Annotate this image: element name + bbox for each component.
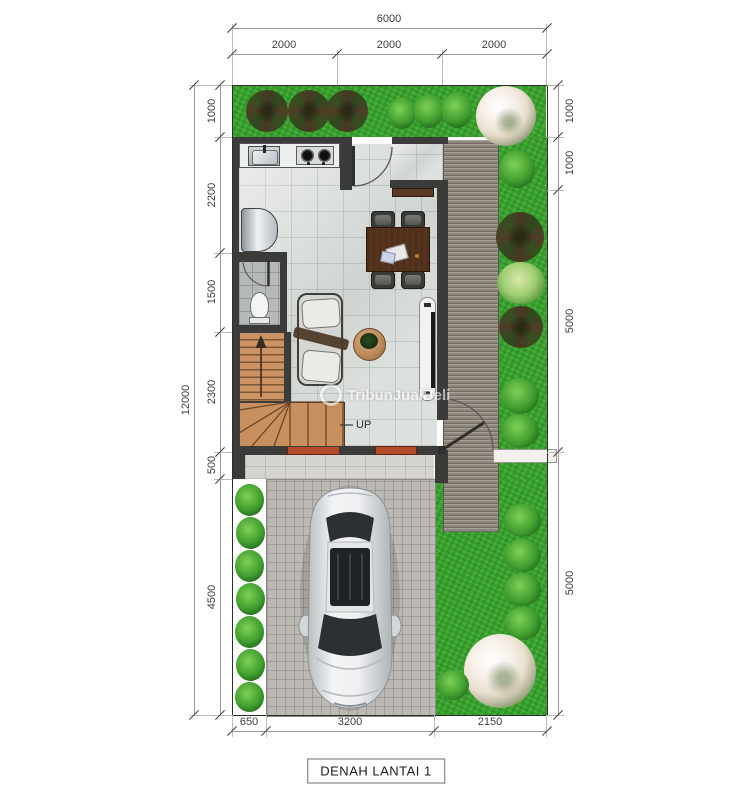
extension-line — [232, 715, 233, 737]
dim-label: 12000 — [180, 385, 192, 416]
extension-line — [546, 715, 547, 737]
dim-label: 2300 — [206, 380, 218, 404]
dim-label: 4500 — [206, 585, 218, 609]
dim-label: 1000 — [206, 99, 218, 123]
extension-line — [337, 50, 338, 85]
dim-label: 1000 — [564, 151, 576, 175]
dim-line-top-total — [232, 28, 547, 29]
dim-label: 2000 — [272, 39, 296, 51]
dim-label: 650 — [240, 716, 258, 728]
title-container: DENAH LANTAI 1 — [307, 759, 445, 784]
dim-label: 500 — [206, 456, 218, 474]
dim-label: 5000 — [564, 309, 576, 333]
extension-line — [190, 715, 232, 716]
dim-label: 6000 — [377, 13, 401, 25]
extension-line — [266, 715, 267, 737]
floor-plan-sheet: UP — [0, 0, 752, 800]
dim-label: 2200 — [206, 183, 218, 207]
dim-line-top-segments — [232, 54, 547, 55]
dim-line-left-total — [194, 85, 195, 715]
page-title: DENAH LANTAI 1 — [307, 759, 445, 784]
dim-line-left-segments — [220, 85, 221, 715]
dim-label: 5000 — [564, 571, 576, 595]
dim-label: 1500 — [206, 280, 218, 304]
extension-line — [434, 715, 435, 737]
dim-line-bottom — [232, 731, 547, 732]
extension-line — [442, 50, 443, 85]
extension-line — [190, 85, 232, 86]
dim-line-right — [558, 85, 559, 715]
dim-label: 2000 — [482, 39, 506, 51]
dim-label: 2000 — [377, 39, 401, 51]
dim-label: 1000 — [564, 99, 576, 123]
property-boundary — [232, 85, 548, 716]
dim-label: 2150 — [478, 716, 502, 728]
dim-label: 3200 — [338, 716, 362, 728]
